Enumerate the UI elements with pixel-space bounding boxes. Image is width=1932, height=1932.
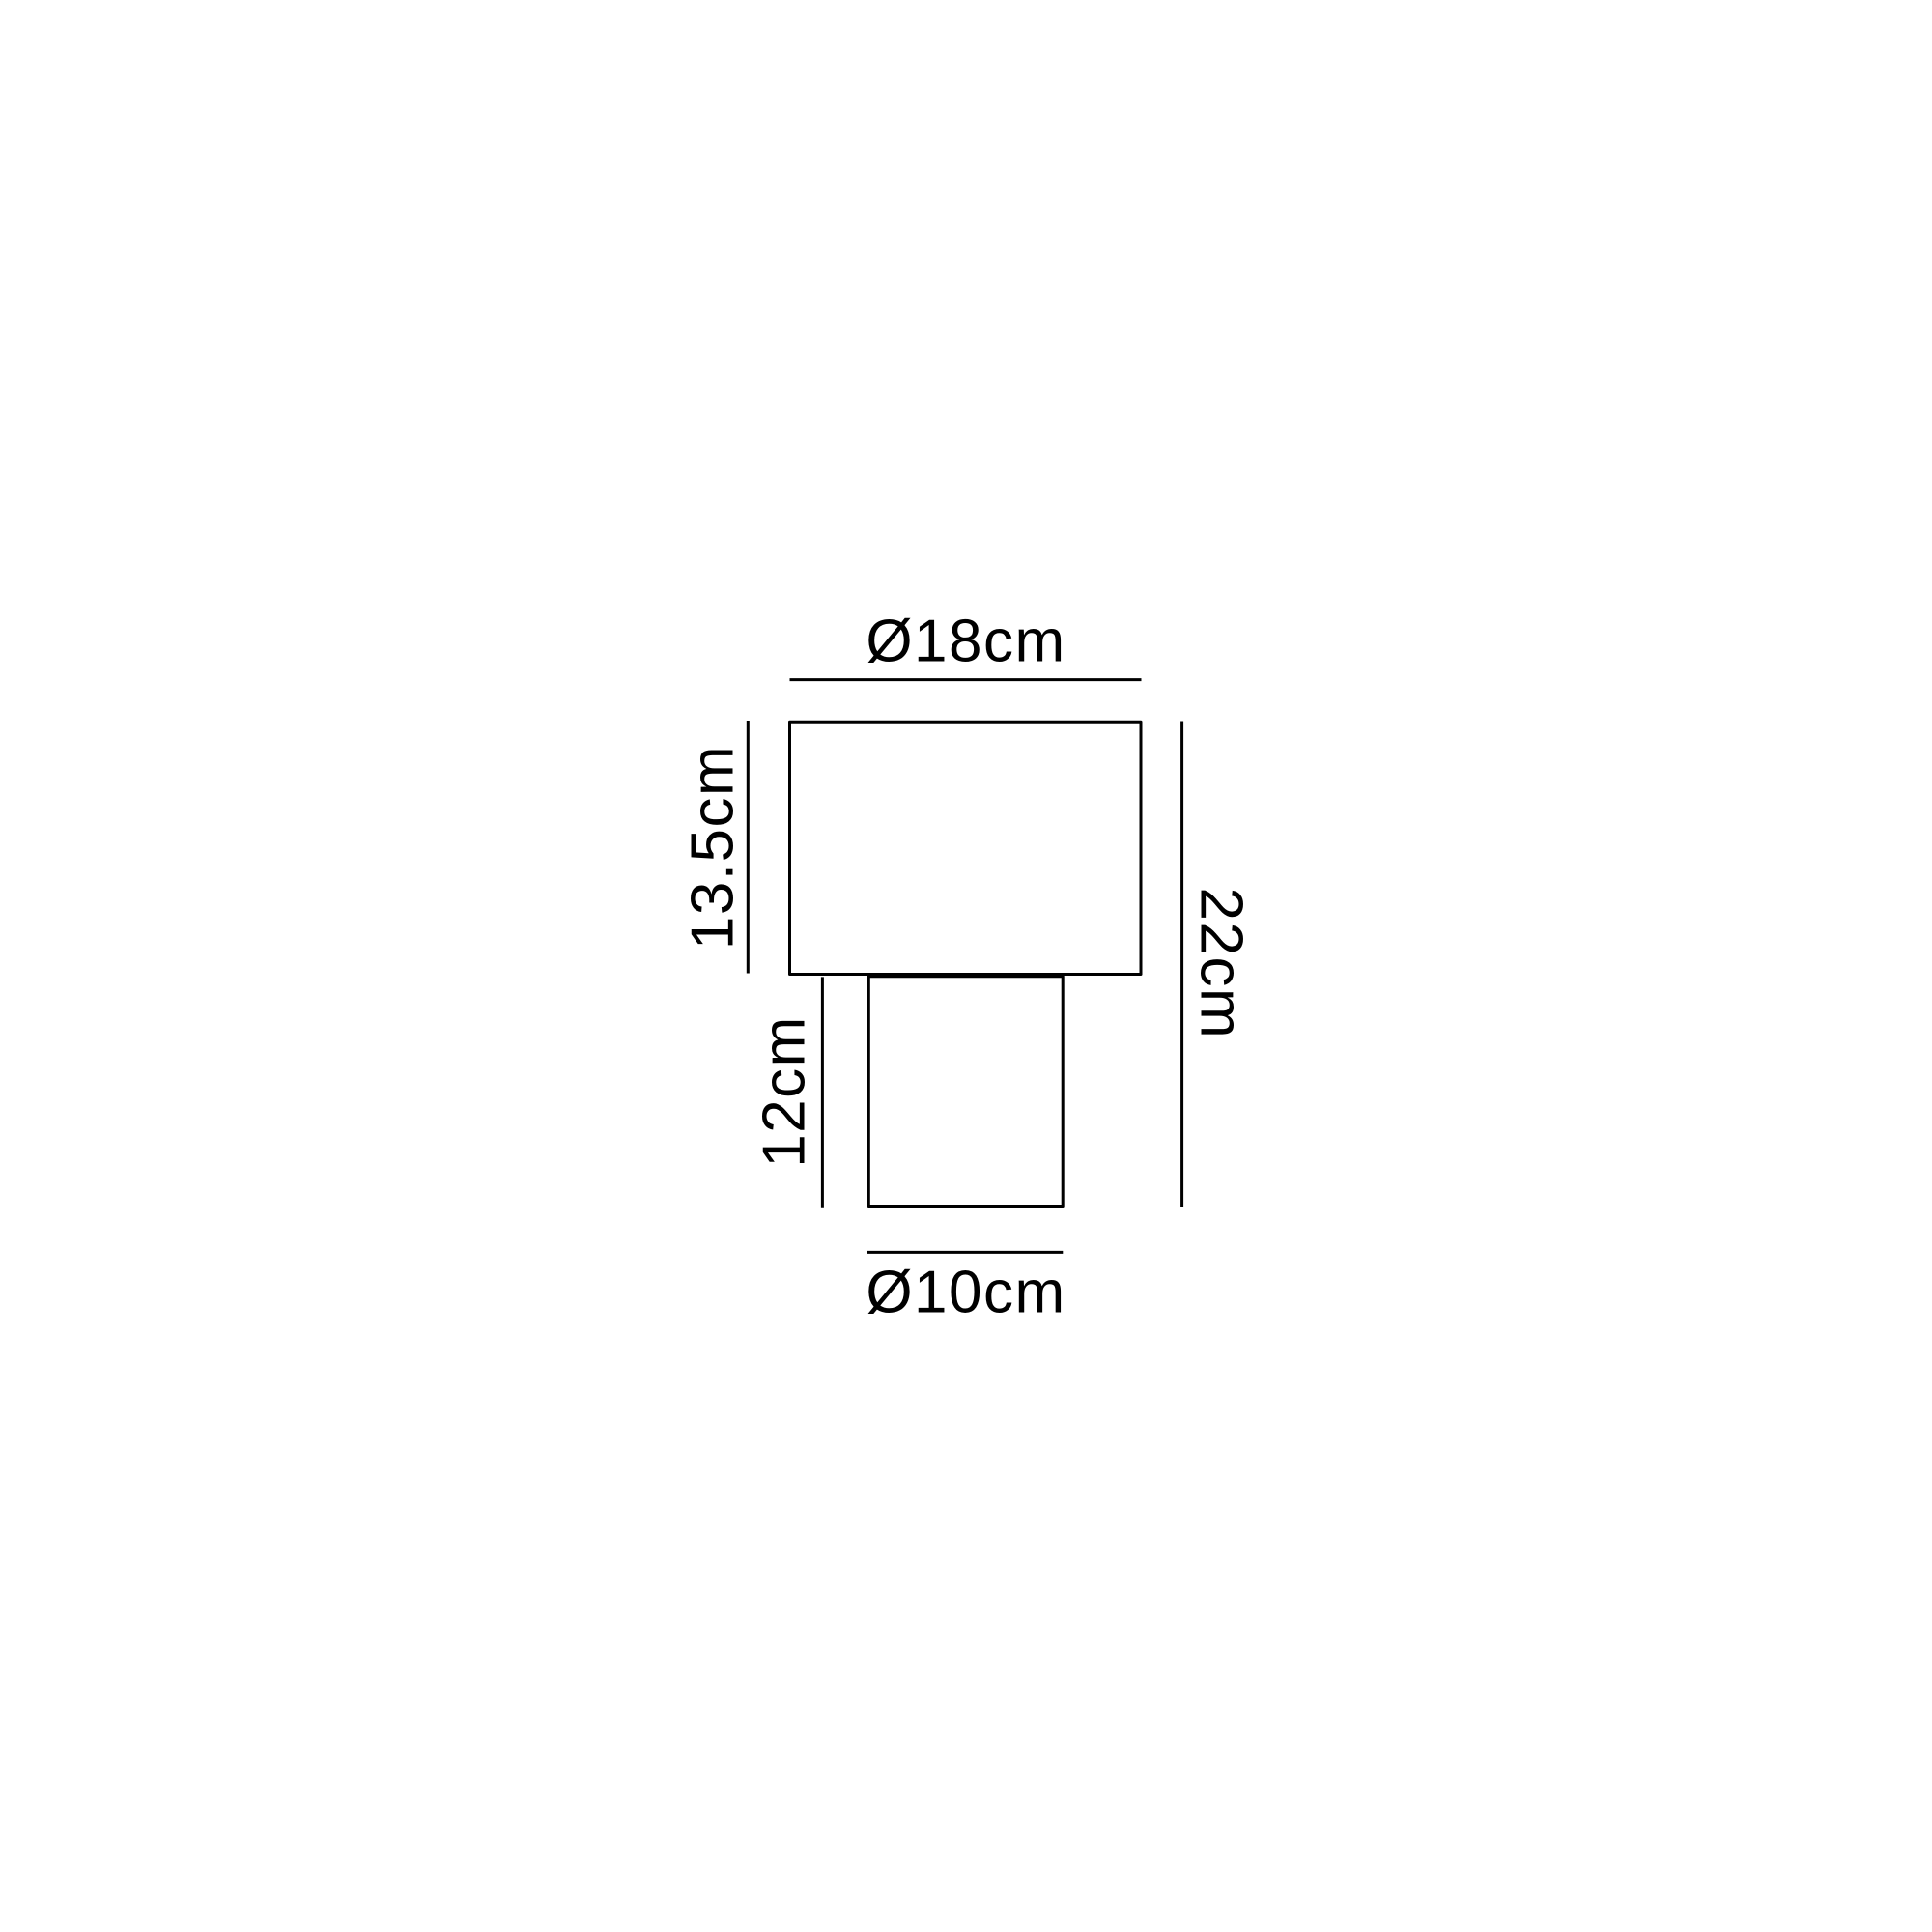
- svg-text:13.5cm: 13.5cm: [680, 745, 747, 950]
- svg-text:22cm: 22cm: [1187, 887, 1254, 1039]
- svg-text:Ø10cm: Ø10cm: [866, 1259, 1065, 1325]
- svg-text:Ø18cm: Ø18cm: [866, 609, 1065, 675]
- svg-text:12cm: 12cm: [752, 1015, 818, 1168]
